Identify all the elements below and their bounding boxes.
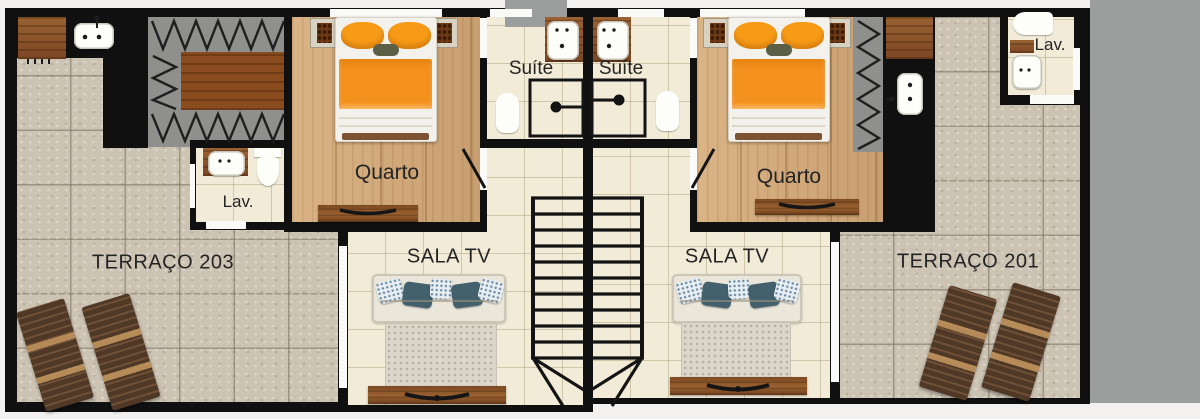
door-lav-left bbox=[206, 221, 246, 229]
blanket bbox=[339, 59, 432, 109]
window-bedroom-right bbox=[700, 9, 805, 17]
sofa-pillow bbox=[773, 277, 802, 304]
sofa-pillow bbox=[375, 277, 406, 305]
tvroom-left-label: SALA TV bbox=[407, 246, 491, 269]
shelf-lav-right bbox=[1010, 40, 1034, 53]
toilet-suite-right bbox=[656, 91, 679, 131]
sink-suite-left bbox=[547, 21, 579, 60]
nightstand-decor bbox=[710, 23, 725, 43]
toilet-lav-left bbox=[257, 156, 279, 186]
sheet-fold bbox=[732, 117, 825, 119]
toilet-suite-left bbox=[496, 93, 519, 133]
nightstand-decor bbox=[437, 23, 452, 43]
sink-service-left bbox=[74, 23, 114, 49]
accent-pillow bbox=[766, 44, 792, 56]
cabinet-left bbox=[18, 17, 66, 59]
bed-left bbox=[335, 17, 437, 142]
closet-right bbox=[853, 17, 883, 152]
sofa-right bbox=[672, 274, 802, 323]
bed-right bbox=[728, 17, 830, 142]
window-suite-right bbox=[618, 9, 664, 17]
lav-right-label: Lav. bbox=[1035, 35, 1066, 55]
toilet-lav-right bbox=[1013, 12, 1053, 35]
door-bedroom-suite-right bbox=[690, 18, 697, 58]
tvroom-right-label: SALA TV bbox=[685, 246, 769, 269]
footboard bbox=[342, 133, 429, 140]
floor-plan: TERRAÇO 203 Lav. Quarto Suíte SALA TV Su… bbox=[0, 0, 1200, 419]
window-bedroom-left bbox=[330, 9, 442, 17]
door-bedroom-hall-left bbox=[480, 148, 487, 190]
sink-closet-right bbox=[897, 73, 923, 115]
bedroom-left-label: Quarto bbox=[355, 161, 419, 185]
sink-lav-right bbox=[1012, 55, 1042, 89]
sink-suite-right bbox=[597, 21, 629, 60]
terrace-right-label: TERRAÇO 201 bbox=[897, 251, 1039, 274]
sheet-fold bbox=[732, 125, 825, 127]
sheet-fold bbox=[339, 117, 432, 119]
accent-pillow bbox=[373, 44, 399, 56]
window-suite-left bbox=[490, 9, 532, 17]
door-terrace-tvroom-right bbox=[831, 242, 839, 382]
door-bedroom-hall-right bbox=[690, 148, 697, 190]
sink-lav-left bbox=[208, 151, 245, 176]
door-terrace-tvroom-left bbox=[339, 246, 347, 388]
footboard bbox=[735, 133, 822, 140]
blanket bbox=[732, 59, 825, 109]
nightstand-left-1 bbox=[310, 18, 338, 48]
terrace-left-label: TERRAÇO 203 bbox=[92, 252, 234, 275]
window-lav-right bbox=[1073, 48, 1080, 90]
door-bedroom-suite-left bbox=[480, 18, 487, 58]
sofa-pillow bbox=[675, 277, 706, 305]
door-lav-right bbox=[1030, 95, 1074, 104]
dresser-bedroom-left bbox=[318, 205, 418, 222]
nightstand-decor bbox=[830, 23, 845, 43]
nightstand-right-1 bbox=[703, 18, 731, 48]
suite-left-label: Suíte bbox=[509, 58, 553, 80]
suite-right-label: Suíte bbox=[599, 58, 643, 80]
tv-stand-right bbox=[670, 377, 807, 395]
tv-stand-left bbox=[368, 386, 506, 404]
sheet-fold bbox=[339, 125, 432, 127]
cabinet-right bbox=[886, 17, 933, 59]
sofa-pillow bbox=[477, 277, 506, 304]
outside-area-right bbox=[1090, 0, 1200, 403]
hall-right-floor bbox=[593, 148, 690, 232]
rug-right bbox=[681, 322, 791, 385]
dresser-bedroom-right bbox=[755, 199, 859, 215]
sofa-left bbox=[372, 274, 506, 323]
window-lav-left bbox=[190, 164, 195, 208]
sofa-pillow bbox=[429, 278, 452, 299]
lav-left-label: Lav. bbox=[223, 192, 254, 212]
rug-left bbox=[385, 323, 497, 387]
closet-left-wood-floor bbox=[181, 52, 289, 110]
nightstand-decor bbox=[317, 23, 332, 43]
bedroom-right-label: Quarto bbox=[757, 165, 821, 189]
wall-fill-left bbox=[103, 58, 148, 148]
